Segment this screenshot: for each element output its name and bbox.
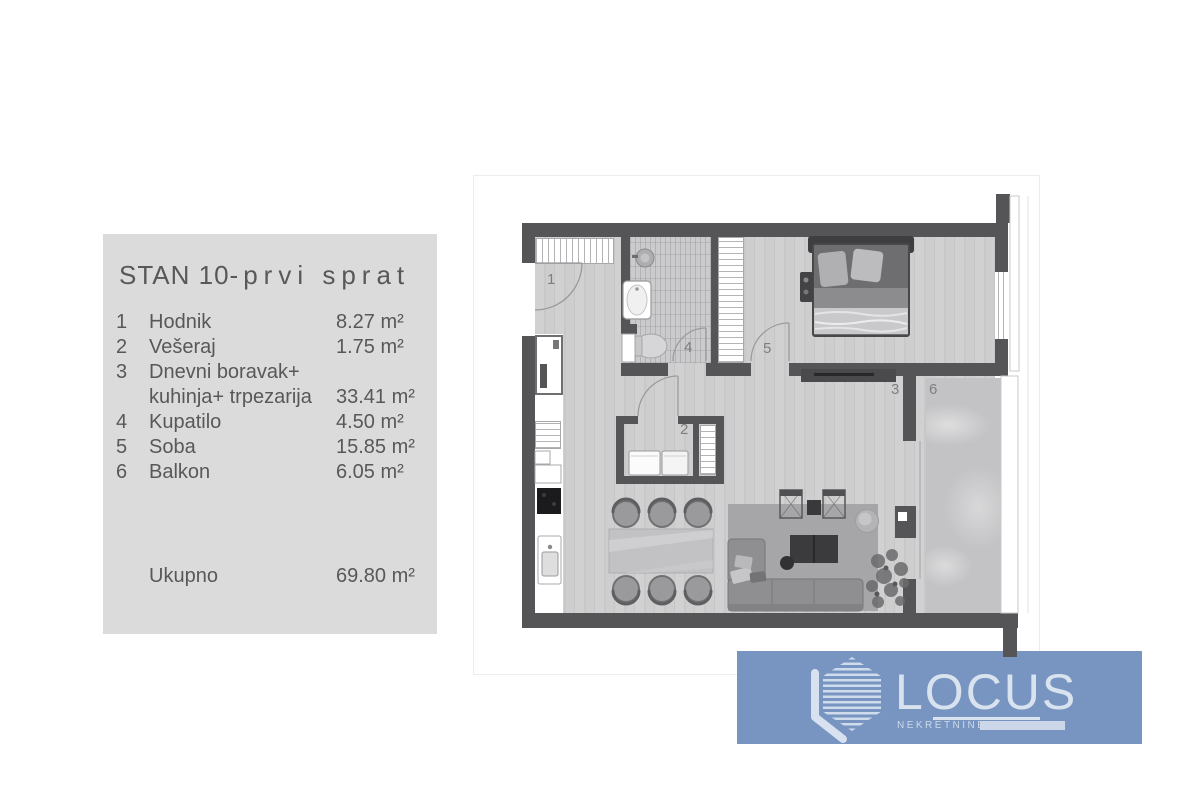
room-number: 1 xyxy=(116,310,149,335)
room-area: 4.50 m² xyxy=(336,410,437,435)
cooktop xyxy=(537,488,561,514)
washing-machines xyxy=(629,451,688,475)
room-row-dnevni-boravak: 3 Dnevni boravak+kuhinja+ trpezarija 33.… xyxy=(103,360,437,410)
bathroom-sink xyxy=(632,249,654,267)
room-list: 1 Hodnik 8.27 m² 2 Vešeraj 1.75 m² 3 Dne… xyxy=(103,310,437,485)
entry-door-arc xyxy=(535,263,582,310)
room-number: 5 xyxy=(116,435,149,460)
room-number: 6 xyxy=(116,460,149,485)
plan-label-laundry: 2 xyxy=(680,421,688,438)
room-area: 15.85 m² xyxy=(336,435,437,460)
kitchen-sink xyxy=(538,536,561,584)
apartment-number: STAN 10- xyxy=(119,260,239,290)
room-area: 1.75 m² xyxy=(336,335,437,360)
side-table xyxy=(807,500,821,515)
room-row-veseraj: 2 Vešeraj 1.75 m² xyxy=(103,335,437,360)
locus-logo-banner: LOCUS NEKRETNINE xyxy=(737,651,1142,744)
room-row-balkon: 6 Balkon 6.05 m² xyxy=(103,460,437,485)
plan-label-bedroom: 5 xyxy=(763,340,771,357)
room-area: 33.41 m² xyxy=(336,385,437,410)
plan-label-living: 3 xyxy=(891,381,899,398)
tagline-bar xyxy=(980,721,1065,730)
bed xyxy=(808,236,914,336)
balcony-wall-stub xyxy=(1003,627,1017,657)
room-number: 4 xyxy=(116,410,149,435)
laundry-door-arc xyxy=(638,376,678,416)
kitchen-cabinet-boxes xyxy=(535,451,561,483)
floor-name: prvi sprat xyxy=(243,260,410,290)
room-name: Hodnik xyxy=(149,310,336,335)
bedroom-window xyxy=(995,272,1008,339)
total-area: 69.80 m² xyxy=(336,564,450,589)
toilet xyxy=(635,334,667,358)
plan-drawing xyxy=(474,176,1041,676)
room-number: 3 xyxy=(116,360,149,410)
room-name: Kupatilo xyxy=(149,410,336,435)
room-name: Dnevni boravak+kuhinja+ trpezarija xyxy=(149,360,336,410)
pouf xyxy=(856,510,879,533)
bathtub xyxy=(623,281,651,319)
page-title: STAN 10-prvi sprat xyxy=(119,260,410,291)
nightstand xyxy=(800,272,813,302)
page: { "panel": { "title_main": "STAN 10-", "… xyxy=(0,0,1200,800)
apartment-info-panel: STAN 10-prvi sprat 1 Hodnik 8.27 m² 2 Ve… xyxy=(103,234,437,634)
room-number: 2 xyxy=(116,335,149,360)
brand-tagline: NEKRETNINE xyxy=(897,720,986,731)
room-area: 8.27 m² xyxy=(336,310,437,335)
room-name: Soba xyxy=(149,435,336,460)
room-row-soba: 5 Soba 15.85 m² xyxy=(103,435,437,460)
room-name: Vešeraj xyxy=(149,335,336,360)
total-label: Ukupno xyxy=(149,564,336,589)
room-name: Balkon xyxy=(149,460,336,485)
kitchen-shaft xyxy=(536,336,562,394)
room-area: 6.05 m² xyxy=(336,460,437,485)
room-row-hodnik: 1 Hodnik 8.27 m² xyxy=(103,310,437,335)
tv-console xyxy=(801,369,896,382)
brand-name: LOCUS xyxy=(895,667,1077,717)
floor-plan: 1 4 5 2 3 6 xyxy=(473,175,1040,675)
total-row: Ukupno 69.80 m² xyxy=(103,564,450,589)
dining-table xyxy=(609,529,713,573)
plan-label-bathroom: 4 xyxy=(684,339,692,356)
room-row-kupatilo: 4 Kupatilo 4.50 m² xyxy=(103,410,437,435)
plan-label-hallway: 1 xyxy=(547,271,555,288)
plan-label-balcony: 6 xyxy=(929,381,937,398)
